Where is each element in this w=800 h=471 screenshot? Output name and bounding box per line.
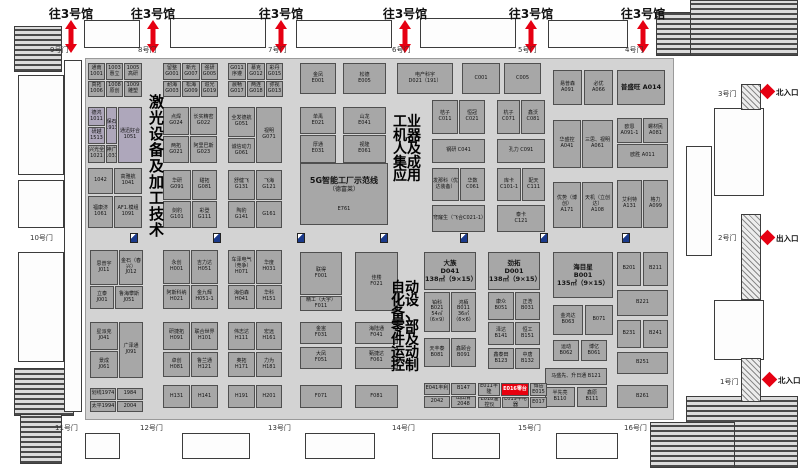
gate-label: 11号门 [55,423,78,433]
gate-label: 16号门 [624,423,647,433]
booth: 中唐 B132 [515,348,540,369]
booth: 高雅航 1041 [114,168,142,194]
booth: 星派克 J041 [90,322,118,350]
booth: 天机（立创达） A108 [582,182,613,228]
booth: 弥视G013 [266,81,283,97]
building-outline [741,84,761,110]
booth: 精工（大宇）F011 [300,296,342,311]
booth: 阿里巴斯 G023 [190,136,217,163]
booth: 神广1031 [106,145,117,163]
booth: E041丰利 [424,383,450,395]
booth: 穹窿生（飞合C021-1） [432,205,485,232]
entrance-marker-icon [760,230,776,246]
building-outline [18,252,64,362]
gate-label: 5号门 [518,45,536,55]
booth: 飞海 G121 [256,170,282,200]
booth: 陶豹 G141 [228,201,255,228]
booth: 宏远 H161 [256,322,282,350]
booth: 金鸿达 B063 [553,305,583,335]
booth: B221 [617,290,668,316]
booth: 1005高研 [124,63,142,80]
booth: 视明 G071 [256,107,282,163]
exhibition-floor-plan: 激光设备及加工技术 工业机器人及集成应用 自动化设备、零部件及运动控制 5G智能… [0,0,800,471]
booth: 吉力达 H051 [191,250,218,284]
booth: 彩登 G111 [192,201,217,228]
entrance-label: 北入口 [776,87,799,98]
building-outline [548,20,628,48]
booth: C001 [462,63,500,94]
booth: 优势（博创） A171 [553,182,581,228]
gate-label: 14号门 [392,423,415,433]
building-outline [182,433,250,459]
building-outline [741,358,761,402]
building-outline [690,0,798,56]
building-outline [296,20,392,48]
booth: 太平1994 [90,401,116,412]
building-outline [64,60,82,412]
booth: 库卡 C101-1 [497,168,521,201]
booth: B071 [585,305,613,335]
booth: 兴光全1021 [88,145,105,163]
booth: 诚信动力 G061 [228,138,255,163]
booth: 必优 A066 [584,70,613,105]
entrance-label: 北入口 [778,375,800,386]
booth: 山田青2048 [451,396,476,408]
booth: 鑫沃 C081 [521,100,545,134]
section-title-automation: 自动化设备、零部件及运动控制 [390,282,420,373]
booth: 三思、视明 A061 [582,120,613,168]
booth: 卓创 H081 [163,352,190,377]
booth: 广泽通 J091 [119,322,143,378]
booth: B261 [617,385,668,408]
booth: 金石（春兴） J012 [119,250,143,285]
booth: 彩丹G015 [266,63,283,80]
booth: 单禹 E021 [300,107,336,134]
booth: 晨畅G017 [228,81,246,97]
booth: 华科 H151 [256,285,282,309]
booth: 山龙 E041 [343,107,386,134]
facility-icon [380,233,388,243]
booth: 1008原创 [106,81,123,97]
booth: E018温控仪 [478,397,501,408]
gate-label: 3号门 [718,89,736,99]
booth: H141 [191,385,218,408]
building-outline [741,214,761,300]
booth: 强研G005 [201,63,218,80]
booth-5g-title: 5G智能工厂示范线 [310,176,378,185]
building-outline [20,414,62,464]
booth: 通南1001 [88,63,105,80]
building-outline [432,433,500,459]
booth: 电产科宇 D021（191） [397,63,453,94]
booth: 格力 A099 [643,180,668,228]
building-outline [85,433,120,459]
booth: C005 [504,63,541,94]
booth: 孔力 C091 [497,139,545,163]
gate-label: 9号门 [50,45,68,55]
booth: 正浩 B031 [515,292,540,320]
booth: 华数 C061 [460,168,485,201]
facility-icon [297,233,305,243]
booth: 两连G018 [247,81,265,97]
booth: 视隆 E061 [343,135,386,163]
booth: 舒健飞 G131 [228,170,255,200]
booth: 易普森 A091 [553,70,582,105]
booth: 博亿 B061 [581,340,607,361]
booth: G011序遵 [228,63,246,80]
booth: 真拓1006 [88,81,105,97]
booth: 大族 D041 138㎡（9×15） [424,252,476,290]
booth: B231 [617,320,641,348]
booth: 钢研 C041 [432,139,485,163]
booth: 金九辉 H051-1 [191,285,218,309]
booth: 慕克G012 [247,63,265,80]
booth: 半先亮 B110 [545,387,575,407]
booth: H201 [256,385,282,408]
booth: E019丰电器 [502,397,529,408]
booth: 鑫泰田 B123 [488,348,514,369]
booth: 松海G009 [182,81,200,97]
facility-icon [540,233,548,243]
booth: 剑豹 G101 [163,201,191,228]
booth: 杭子 C071 [497,100,520,134]
booth: 恒工 B151 [515,322,540,345]
booth: 金凤 E001 [300,63,336,94]
booth: 欧胜 A011 [617,144,668,168]
booth: E011丰隆 [478,383,500,396]
booth: B211 [643,252,668,286]
facility-icon [622,233,630,243]
booth: B251 [617,352,668,374]
booth: 奥拓 H171 [228,352,255,377]
booth: 研越 1513 [88,127,105,144]
booth: 发那科（优达装备） [432,168,459,201]
booth: 永创 H001 [163,250,190,284]
booth: 泰卡 C121 [497,205,545,232]
booth: 鸿栢 B011 36㎡（6×6） [451,292,476,332]
booth: 1009雕塑 [124,81,142,97]
entrance-marker-icon [762,372,778,388]
facility-icon [460,233,468,243]
booth: 追光G019 [201,81,218,97]
booth: 2042 [424,396,450,408]
booth: G161 [256,201,282,228]
booth: B147 [451,383,476,395]
booth: 泽达 B141 [488,322,514,345]
building-outline [170,18,266,48]
booth: H191 [228,385,255,408]
booth: 1984 [117,388,143,400]
building-outline [714,108,764,196]
building-outline [420,18,516,48]
booth: 全发德航 G051 [228,107,255,137]
booth: AF1.模组 1091 [114,196,142,228]
booth: 2004 [117,401,143,412]
booth-5g-smart-factory-line: 5G智能工厂示范线 （德富莱） E761 [300,163,388,225]
booth: 耐海G003 [163,81,181,97]
booth: 华度 H031 [256,250,282,284]
entrance-marker-icon [760,84,776,100]
booth: 配天 C111 [522,168,545,201]
booth: 车泽电气（竞争） H071 [228,250,255,284]
booth: 海目星 B001 135㎡（9×15） [553,252,613,298]
booth: 天丰泰 B081 [424,338,450,367]
building-outline [84,20,140,48]
booth: E016零台 [501,383,529,396]
booth: F071 [300,385,342,408]
booth: 马盛先、升日通 B121 [545,368,607,385]
booth: 通迅好合 1051 [118,107,142,163]
gate-label: 6号门 [392,45,410,55]
booth: 研捷拓 H091 [163,322,190,350]
building-outline [714,300,764,360]
building-outline [686,146,712,256]
gate-label: 7号门 [268,45,286,55]
gate-label: 1号门 [720,377,738,387]
building-outline [556,433,618,459]
booth: 思普宇 J011 [90,250,118,285]
building-outline [305,433,375,459]
booth: 点焊 G024 [163,107,189,135]
gate-label: 10号门 [30,233,53,243]
booth: 欧恩 A091-1 [617,118,642,143]
booth: 康众 B051 [488,292,514,320]
booth: 鑫原 B111 [577,387,607,407]
booth: 新光G007 [182,63,200,80]
building-outline [18,75,64,175]
booth: 联得 F001 [300,252,342,295]
booth: 螺材民 A081 [643,118,668,143]
booth: 1042 [88,168,113,194]
booth: 博岳E015 [530,383,547,396]
booth: 华研 G091 [163,170,191,200]
booth: 鲁兰通 H121 [191,352,218,377]
booth: 景成 J061 [90,351,118,378]
booth: 艾利特 A131 [617,180,642,228]
booth: 1003惠立 [106,63,123,80]
booth: 桔子 C011 [432,100,458,134]
booth: 甜拓 G081 [192,170,217,200]
section-title-laser: 激光设备及加工技术 [148,94,165,238]
booth: 划线1974 [90,388,116,400]
booth: 保石1913 [106,107,117,144]
booth: 金宙 F031 [300,322,342,344]
building-outline [650,422,735,468]
booth: 福康济 1061 [88,196,113,228]
booth-5g-subtitle: （德富莱） [310,186,378,194]
gate-label: 8号门 [138,45,156,55]
booth: 鑫颐合 B091 [451,338,476,367]
section-title-robotics: 工业机器人及集成应用 [392,116,422,184]
booth: B241 [643,320,668,348]
booth: 华盛控 A041 [553,120,581,168]
booth: 两拓 G021 [163,136,189,163]
booth: 恒冠 C021 [459,100,485,134]
booth: 鲁海攀斯 J051 [115,286,143,309]
booth: 铂科 B021 54㎡（6×9） [424,292,450,332]
booth: 伟志达 H111 [228,322,255,350]
booth: 普盛旺 A014 [617,70,665,105]
booth: F081 [355,385,398,408]
building-outline [18,180,64,228]
booth: 海伯森 H041 [228,285,255,309]
booth-5g-number: E761 [310,206,378,213]
booth: 立泰 J001 [90,286,114,309]
booth: 联合世界 H101 [191,322,218,350]
booth: B201 [617,252,641,286]
booth: 运动 B062 [553,340,579,361]
facility-icon [130,233,138,243]
booth: 长实精密 G022 [190,107,217,135]
booth: 力为 H181 [256,352,282,377]
booth: 劲拓 D001 138㎡（9×15） [488,252,540,290]
booth: 德鸿 1011 [88,107,105,126]
gate-label: 12号门 [140,423,163,433]
gate-label: 2号门 [718,233,736,243]
facility-icon [213,233,221,243]
booth: 厚通 E031 [300,135,336,163]
booth: 大凤 F051 [300,347,342,369]
entrance-label: 出入口 [776,233,799,244]
booth: 阿斯科纳 H021 [163,285,190,309]
booth: H131 [163,385,190,408]
booth: E017 [530,397,547,408]
gate-label: 4号门 [625,45,643,55]
booth: 留整G001 [163,63,181,80]
gate-label: 13号门 [268,423,291,433]
gate-label: 15号门 [518,423,541,433]
booth: 松德 E005 [343,63,386,94]
